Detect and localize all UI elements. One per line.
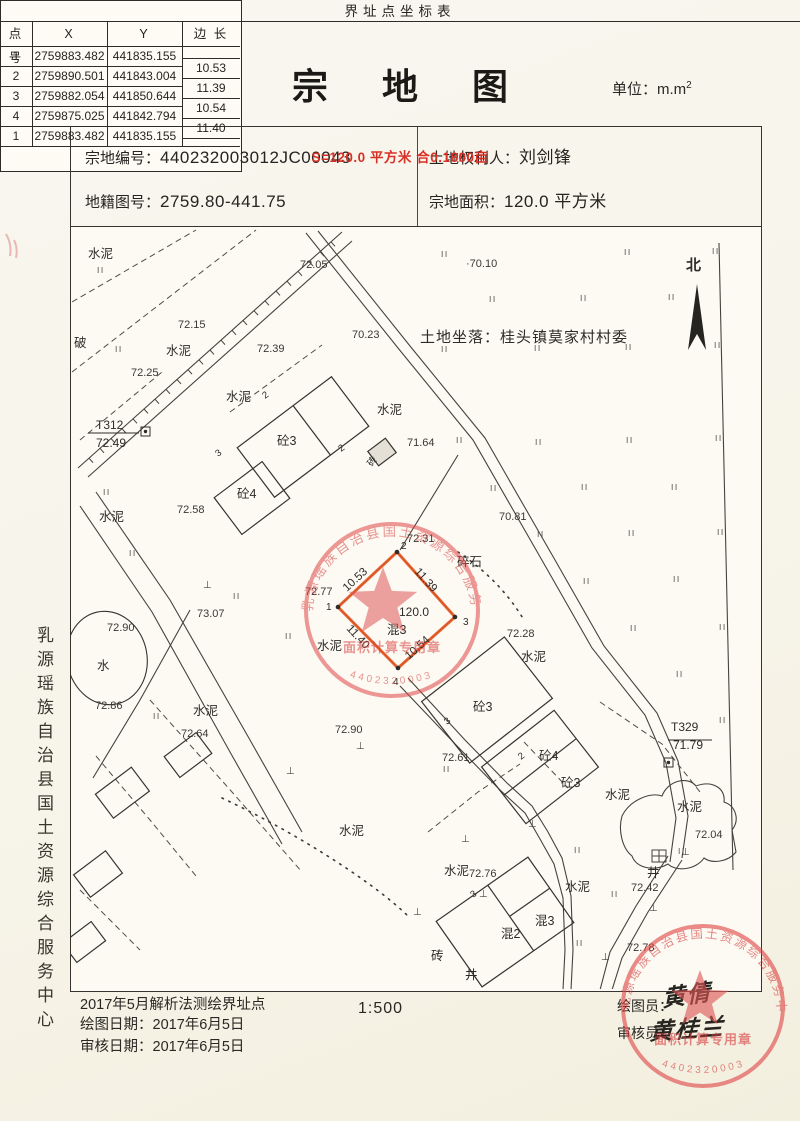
map-label: 碎石 [457,554,482,569]
embankment-ticks [89,242,335,463]
map-scale: 1:500 [358,1000,403,1018]
col-header-y: Y [107,22,182,46]
col-header-point: 点 号 [0,22,32,46]
grass-symbol: II [153,711,161,721]
map-label: 砼3 [277,434,297,448]
map-label: T312 [96,418,124,432]
map-label: 2 [516,750,527,762]
ground-mark: ⊥ [356,741,365,752]
cell-y: 441835.155 [107,46,182,66]
map-label: 2 [401,541,407,552]
ground-mark: ⊥ [528,819,537,830]
map-label: 砖 [431,948,444,963]
map-label: 混3 [387,623,407,637]
map-label: 砼3 [561,776,581,790]
cadastral-map-number: 地籍图号：2759.80-441.75 [85,191,286,212]
map-label: 72.64 [181,728,209,740]
grass-symbol: II [673,574,681,584]
ground-mark: ⊥ [601,952,610,963]
map-label: 水泥 [339,824,364,838]
grass-symbol: II [668,292,676,302]
grass-symbol: II [233,591,241,601]
grass-symbol: II [581,482,589,492]
map-label: 3 [468,888,479,900]
cell-x: 2759883.482 [32,126,107,146]
grass-symbol: II [671,482,679,492]
cell-x: 2759890.501 [32,66,107,86]
map-label: 72.04 [695,829,723,841]
grass-symbols: IIIIIIIIIIIIIIIIIIIIIIIIIIIIIIIIIIIIIIII… [97,246,727,948]
ground-mark: ⊥ [649,903,658,914]
survey-method: 2017年5月解析法测绘界址点 [80,993,265,1014]
map-label: 70.81 [499,511,527,523]
map-label: ·70.10 [466,258,497,270]
svg-text:4402320003: 4402320003 [661,1058,747,1076]
map-label: 120.0 [399,605,429,619]
grass-symbol: II [611,889,619,899]
grass-symbol: II [714,340,722,350]
map-label: 72.15 [178,319,206,331]
red-edge-marks [6,234,17,258]
draw-date: 绘图日期：2017年6月5日 [80,1013,244,1034]
map-label: 3 [463,617,469,628]
header-divider [417,127,418,227]
map-label: 砼4 [237,487,257,501]
map-label: 水泥 [677,800,702,814]
map-label: 72.05 [300,259,328,271]
map-label: 1 [326,602,332,613]
seal-code-text: 4402320003 [661,1058,747,1076]
edge-length: 11.39 [182,78,240,98]
map-label: 水泥 [565,880,590,894]
map-label: 水泥 [166,344,191,358]
grass-symbol: II [630,623,638,633]
map-label: 72.28 [507,628,535,640]
cell-y: 441850.644 [107,86,182,106]
map-label: 水泥 [605,788,630,802]
cell-x: 2759883.482 [32,46,107,66]
map-label: 水泥 [193,704,218,718]
grass-symbol: II [580,293,588,303]
ground-mark: ⊥ [286,766,295,777]
grass-symbol: II [129,548,137,558]
map-label: 水泥 [99,510,124,524]
map-label: 井 [465,968,478,982]
cadastral-map: 土地坐落：桂头镇莫家村村委 IIIIIIIIIIIIIIIIIIIIIIIIII… [70,227,760,989]
grass-symbol: II [576,938,584,948]
map-label: 水 [97,659,110,673]
map-label: 砼4 [539,749,559,763]
map-label: 混3 [535,914,555,928]
map-label: 72.76 [469,868,497,880]
grass-symbol: II [489,294,497,304]
ground-mark: ⊥ [461,834,470,845]
cell-x: 2759882.054 [32,86,107,106]
grass-symbol: II [115,344,123,354]
parcel-area: 宗地面积：120.0 平方米 [429,187,607,212]
map-label: 北 [686,257,701,274]
grass-symbol: II [717,527,725,537]
table-row: 1 [0,126,32,146]
table-row: 2 [0,66,32,86]
col-header-length: 边 长 [182,22,240,46]
grass-symbol: II [490,483,498,493]
dotted-paths [222,552,524,918]
map-label: 水泥 [521,650,546,664]
map-label: 2 [260,389,271,401]
map-label: 70.23 [352,329,380,341]
map-label: 72.90 [107,622,135,634]
agency-side-text: 乳源瑶族自治县国土资源综合服务中心 [31,626,56,1034]
grass-symbol: II [534,343,542,353]
ground-mark: ⊥ [203,580,212,591]
buildings [70,377,598,987]
grass-symbol: II [285,631,293,641]
grass-symbol: II [583,576,591,586]
col-header-x: X [32,22,107,46]
grass-symbol: II [676,669,684,679]
map-label: 水泥 [226,390,251,404]
map-label: 水泥 [444,864,469,878]
grass-symbol: II [441,344,449,354]
map-label: 破 [74,335,87,350]
unit-label: 单位：m.m2 [612,78,692,99]
grass-symbol: II [712,246,720,256]
map-label: 72.86 [95,700,123,712]
map-labels: 水泥破72.15水泥72.25T31272.4972.05·70.1070.23… [74,247,723,982]
parcel-boundary [336,550,458,671]
coordinate-table: 界址点坐标表 点 号 X Y 边 长 1 2759883.482 441835.… [0,0,242,172]
map-label: 71.64 [407,437,435,449]
well-symbol [652,850,666,862]
review-date: 审核日期：2017年6月5日 [80,1035,244,1056]
map-label: 10.54 [403,634,433,663]
grass-symbol: II [103,487,111,497]
map-label: 72.25 [131,367,159,379]
grass-symbol: II [628,528,636,538]
map-label: 72.42 [631,882,659,894]
map-label: 71.79 [673,738,703,752]
map-label: 72.61 [442,752,470,764]
map-label: 水泥 [377,403,402,417]
edge-length: 10.53 [182,58,240,78]
map-label: 4 [393,677,399,688]
drafter-signature: 黄倩 [662,972,713,1013]
grass-symbol: II [443,764,451,774]
grass-symbol: II [719,715,727,725]
map-label: 砼3 [473,700,493,714]
edge-length: 11.40 [182,118,240,138]
grass-symbol: II [625,342,633,352]
grass-symbol: II [535,437,543,447]
grass-symbol: II [626,435,634,445]
north-arrow-icon [688,284,706,350]
grass-symbol: II [441,249,449,259]
map-label: 72.78 [627,942,655,954]
ground-mark: ⊥ [681,847,690,858]
grass-symbol: II [624,247,632,257]
grass-symbol: II [97,265,105,275]
cell-x: 2759875.025 [32,106,107,126]
map-label: 3 [213,447,224,459]
land-location: 土地坐落：桂头镇莫家村村委 [420,329,628,346]
grass-symbol: II [574,845,582,855]
map-label: 72.58 [177,504,205,516]
grass-symbol: II [537,529,545,539]
map-label: 72.90 [335,724,363,736]
table-row: 1 [0,46,32,66]
reviewer-signature: 黄桂兰 [649,1007,726,1046]
grass-symbol: II [719,622,727,632]
map-label: 11.39 [412,566,440,595]
coordinate-table-title: 界址点坐标表 [0,0,800,22]
grass-symbol: II [715,433,723,443]
ground-mark: ⊥ [413,907,422,918]
map-label: 水泥 [88,247,113,261]
cell-y: 441842.794 [107,106,182,126]
cell-y: 441843.004 [107,66,182,86]
grass-symbol: II [456,435,464,445]
map-label: 72.39 [257,343,285,355]
map-label: 井 [647,866,660,880]
map-label: 73.07 [197,608,225,620]
area-summary: S=120.0 平方米 合0.1800亩 [0,146,800,170]
map-label: 72.77 [305,586,333,598]
map-label: 混2 [501,927,521,941]
table-row: 3 [0,86,32,106]
parcel-map-document: { "page": {"title":"宗 地 图","unit_label":… [0,0,800,1121]
table-row: 4 [0,106,32,126]
cell-y: 441835.155 [107,126,182,146]
pond [70,604,156,713]
ground-mark: ⊥ [479,889,488,900]
map-label: 72.31 [407,533,435,545]
edge-length: 10.54 [182,98,240,118]
map-label: T329 [671,720,699,734]
map-label: 水泥 [317,639,342,653]
map-label: 72.49 [96,436,126,450]
